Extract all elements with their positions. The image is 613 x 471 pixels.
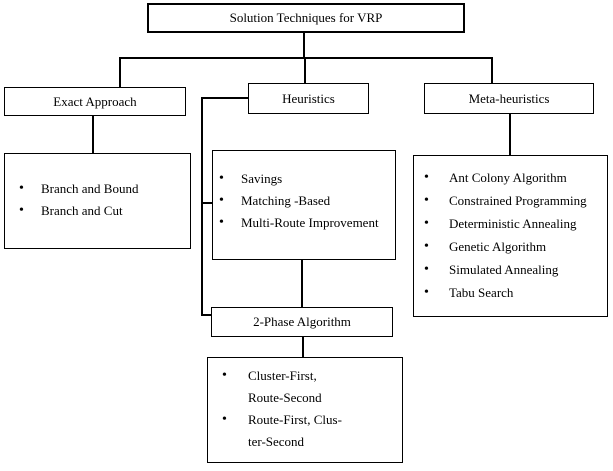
list-item-text: Tabu Search (449, 281, 607, 304)
exact-approach-label: Exact Approach (53, 94, 136, 110)
meta-heuristics-label: Meta-heuristics (469, 91, 550, 107)
two-phase-algorithm-node: 2-Phase Algorithm (211, 307, 393, 337)
list-item-text: Ant Colony Algorithm (449, 166, 607, 189)
connector-drop-exact (119, 57, 121, 87)
list-item: • Branch and Bound (5, 178, 190, 200)
list-item-text: Matching -Based (241, 190, 395, 212)
list-item-text: Branch and Bound (41, 178, 190, 200)
connector-root-down (303, 33, 305, 58)
list-item-text: Route-First, Clus- ter-Second (248, 409, 402, 453)
root-node-label: Solution Techniques for VRP (230, 10, 383, 26)
list-item-line: Route-Second (248, 387, 402, 409)
list-item-text: Deterministic Annealing (449, 212, 607, 235)
connector-tick-heuristic-list (201, 202, 212, 204)
heuristics-label: Heuristics (282, 91, 335, 107)
exact-methods-list: • Branch and Bound • Branch and Cut (4, 153, 191, 249)
list-item-text: Genetic Algorithm (449, 235, 607, 258)
list-item: • Multi-Route Improvement (213, 212, 395, 234)
two-phase-algorithm-label: 2-Phase Algorithm (253, 314, 351, 330)
connector-heuristic-list-to-two-phase (301, 259, 303, 307)
connector-meta-to-list (509, 114, 511, 155)
meta-heuristics-node: Meta-heuristics (424, 83, 594, 114)
list-item: • Simulated Annealing (414, 258, 607, 281)
bullet-icon: • (424, 189, 449, 212)
list-item: • Constrained Programming (414, 189, 607, 212)
list-item: • Deterministic Annealing (414, 212, 607, 235)
connector-exact-to-list (92, 115, 94, 153)
bullet-icon: • (222, 365, 248, 409)
bullet-icon: • (424, 235, 449, 258)
root-node: Solution Techniques for VRP (147, 3, 465, 33)
list-item: • Tabu Search (414, 281, 607, 304)
list-item: • Cluster-First, Route-Second (208, 365, 402, 409)
list-item-text: Branch and Cut (41, 200, 190, 222)
list-item-line: ter-Second (248, 431, 402, 453)
heuristics-node: Heuristics (248, 83, 369, 114)
list-item: • Branch and Cut (5, 200, 190, 222)
connector-two-phase-to-list (302, 337, 304, 357)
list-item-text: Constrained Programming (449, 189, 607, 212)
bullet-icon: • (219, 168, 241, 190)
list-item-text: Multi-Route Improvement (241, 212, 395, 234)
bullet-icon: • (19, 200, 41, 222)
connector-drop-meta (491, 57, 493, 83)
list-item: • Route-First, Clus- ter-Second (208, 409, 402, 453)
connector-tick-two-phase (201, 314, 211, 316)
bullet-icon: • (219, 190, 241, 212)
connector-drop-heuristics (304, 57, 306, 83)
connector-branch-horizontal (119, 57, 493, 59)
bullet-icon: • (424, 166, 449, 189)
list-item-text: Savings (241, 168, 395, 190)
heuristic-methods-list: • Savings • Matching -Based • Multi-Rout… (212, 150, 396, 260)
bullet-icon: • (222, 409, 248, 453)
vrp-solution-techniques-diagram: Solution Techniques for VRP Exact Approa… (0, 0, 613, 471)
two-phase-methods-list: • Cluster-First, Route-Second • Route-Fi… (207, 357, 403, 463)
list-item: • Savings (213, 168, 395, 190)
list-item-line: Route-First, Clus- (248, 409, 402, 431)
list-item-text: Cluster-First, Route-Second (248, 365, 402, 409)
bullet-icon: • (424, 212, 449, 235)
bullet-icon: • (424, 281, 449, 304)
bullet-icon: • (19, 178, 41, 200)
connector-heuristics-elbow-vertical (201, 97, 203, 316)
list-item: • Matching -Based (213, 190, 395, 212)
list-item-line: Cluster-First, (248, 365, 402, 387)
list-item-text: Simulated Annealing (449, 258, 607, 281)
bullet-icon: • (219, 212, 241, 234)
meta-heuristic-methods-list: • Ant Colony Algorithm • Constrained Pro… (413, 155, 608, 317)
list-item: • Ant Colony Algorithm (414, 166, 607, 189)
connector-heuristics-elbow-horizontal (201, 97, 248, 99)
bullet-icon: • (424, 258, 449, 281)
list-item: • Genetic Algorithm (414, 235, 607, 258)
exact-approach-node: Exact Approach (4, 87, 186, 116)
